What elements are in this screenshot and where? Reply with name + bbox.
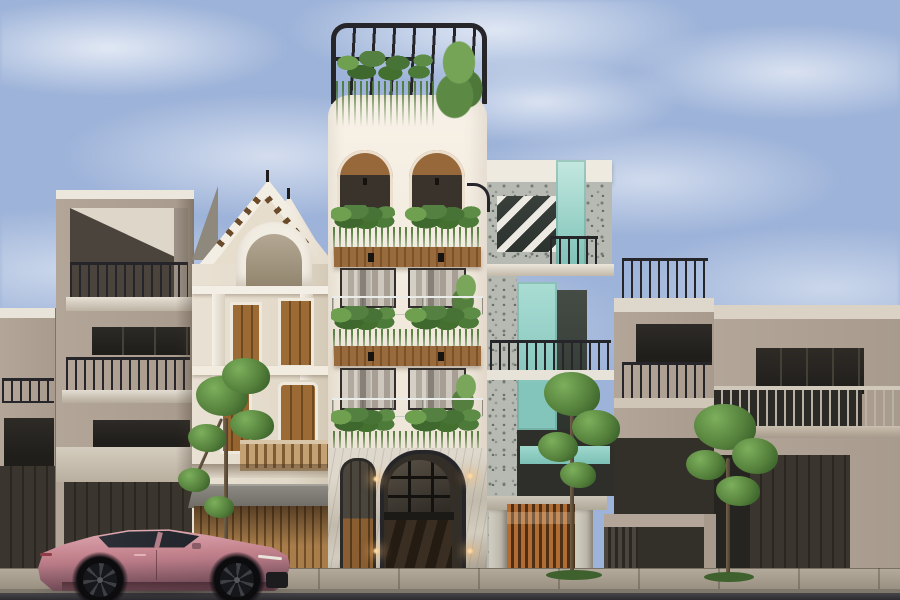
roof-fascia: [487, 160, 612, 182]
entry-arch-door: [340, 458, 376, 581]
roof-fascia: [712, 305, 900, 319]
street-scene: [0, 0, 900, 600]
door-seam: [156, 550, 157, 580]
gable-finial: [266, 170, 269, 182]
downlight-icon: [438, 352, 444, 361]
canopy: [56, 447, 194, 482]
tree-foliage: [686, 450, 726, 480]
roof-bush: [432, 35, 486, 133]
tree-foliage: [188, 424, 226, 452]
wall-sconce-light: [466, 547, 474, 555]
downlight-icon: [438, 253, 444, 262]
wood-soffit-band: [334, 346, 481, 366]
balcony-slab: [62, 390, 194, 403]
wood-window: [278, 298, 314, 368]
tree-foliage: [204, 496, 234, 518]
white-plant-house: [328, 23, 487, 578]
tree-foliage: [716, 476, 760, 506]
side-mirror: [192, 543, 201, 549]
tree-foliage: [222, 358, 270, 394]
gable-finial: [287, 188, 290, 199]
arch-window: [337, 150, 393, 212]
cornice-band: [192, 286, 332, 294]
tree-foliage: [538, 432, 578, 462]
roof-fascia: [614, 298, 714, 312]
balcony-slab: [66, 297, 194, 311]
niche-recess: [246, 234, 302, 286]
window: [636, 324, 712, 364]
window: [4, 418, 54, 466]
door-beam: [384, 512, 454, 520]
front-wheel: [214, 557, 260, 600]
roof-planter-foliage: [332, 51, 438, 85]
tree-foliage: [572, 410, 620, 446]
roof-terrace-railing: [622, 258, 708, 301]
left-taupe-house: [56, 190, 194, 578]
downlight-icon: [368, 352, 374, 361]
wood-soffit-band: [334, 247, 481, 267]
wall-sconce-light: [372, 475, 380, 483]
balcony-slab: [487, 264, 614, 276]
transom-glass: [388, 460, 450, 512]
main-entry-arch: [380, 450, 466, 582]
tree-center: [536, 362, 620, 580]
tree-bed: [704, 572, 754, 582]
pendant-light: [363, 178, 367, 185]
wall-sconce-light: [466, 472, 474, 480]
roof-fascia: [0, 308, 58, 318]
roof-planter-vines: [336, 81, 436, 129]
tree-foliage: [178, 468, 210, 492]
arch-window: [409, 150, 465, 212]
pink-sedan: [38, 524, 290, 600]
recessed-balcony: [70, 208, 188, 308]
tree-right: [686, 388, 778, 580]
wall-sconce-light: [372, 547, 380, 555]
wheel-hub: [97, 577, 103, 583]
pendant-light: [435, 178, 439, 185]
wheel-hub: [234, 577, 240, 583]
taillight: [40, 553, 52, 556]
rear-wheel: [77, 557, 123, 600]
door-handle: [134, 554, 146, 556]
tree-bed: [546, 570, 602, 580]
front-grille: [266, 572, 288, 588]
balcony-railing: [2, 378, 54, 403]
tree-foliage: [732, 438, 778, 474]
downlight-icon: [368, 253, 374, 262]
roof-fascia: [56, 190, 194, 199]
tree-foliage: [560, 462, 596, 488]
roof-soffit: [70, 208, 188, 263]
tree-foliage: [230, 410, 274, 440]
